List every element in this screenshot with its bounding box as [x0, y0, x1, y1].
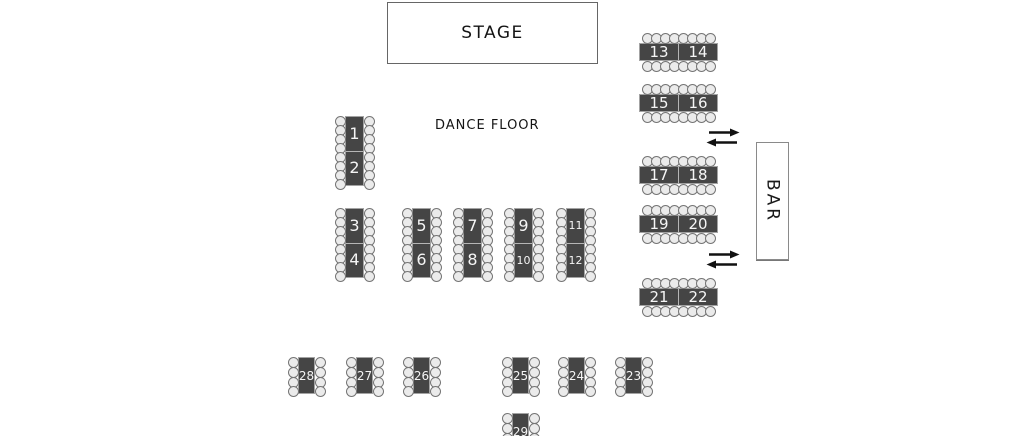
- chair: [288, 386, 299, 397]
- chair: [705, 33, 716, 44]
- table-number: 14: [678, 44, 717, 60]
- table-28[interactable]: 28: [298, 357, 315, 394]
- bar: BAR: [756, 142, 789, 260]
- table-number: 25: [513, 358, 528, 393]
- chair: [364, 271, 375, 282]
- table-number: 27: [357, 358, 372, 393]
- chair: [533, 271, 544, 282]
- chair: [335, 271, 346, 282]
- table-11-12[interactable]: 1112: [566, 208, 585, 278]
- table-25[interactable]: 25: [512, 357, 529, 394]
- chair: [705, 278, 716, 289]
- chair: [705, 61, 716, 72]
- table-26[interactable]: 26: [413, 357, 430, 394]
- chair: [556, 271, 567, 282]
- table-7-8[interactable]: 78: [463, 208, 482, 278]
- table-number: 9: [515, 209, 532, 243]
- table-27[interactable]: 27: [356, 357, 373, 394]
- table-9-10[interactable]: 910: [514, 208, 533, 278]
- table-number: 3: [346, 209, 363, 243]
- chair: [705, 156, 716, 167]
- table-number: 20: [678, 216, 717, 232]
- chair: [315, 386, 326, 397]
- table-1-2[interactable]: 12: [345, 116, 364, 186]
- chair: [558, 386, 569, 397]
- table-number: 17: [640, 167, 678, 183]
- table-number: 22: [678, 289, 717, 305]
- chair: [705, 112, 716, 123]
- chair: [453, 271, 464, 282]
- table-number: 5: [413, 209, 430, 243]
- passage-arrows-bottom-icon: [706, 250, 740, 273]
- table-number: 2: [346, 151, 363, 186]
- chair: [430, 386, 441, 397]
- table-number: 24: [569, 358, 584, 393]
- stage-label: STAGE: [461, 23, 524, 43]
- table-number: 16: [678, 95, 717, 111]
- chair: [504, 271, 515, 282]
- table-21-22[interactable]: 2122: [639, 288, 718, 306]
- table-number: 10: [515, 243, 532, 278]
- table-number: 19: [640, 216, 678, 232]
- table-17-18[interactable]: 1718: [639, 166, 718, 184]
- table-24[interactable]: 24: [568, 357, 585, 394]
- venue-floor-plan: STAGE DANCE FLOOR BAR 123456789101112131…: [0, 0, 1024, 436]
- chair: [373, 386, 384, 397]
- table-13-14[interactable]: 1314: [639, 43, 718, 61]
- chair: [502, 386, 513, 397]
- chair: [705, 205, 716, 216]
- table-number: 12: [567, 243, 584, 278]
- chair: [402, 271, 413, 282]
- chair: [705, 184, 716, 195]
- table-23[interactable]: 23: [625, 357, 642, 394]
- table-number: 29: [513, 414, 528, 436]
- chair: [529, 433, 540, 436]
- dance-floor-label: DANCE FLOOR: [435, 118, 540, 133]
- passage-arrows-top-icon: [706, 128, 740, 151]
- table-number: 11: [567, 209, 584, 243]
- chair: [502, 433, 513, 436]
- table-number: 23: [626, 358, 641, 393]
- table-number: 4: [346, 243, 363, 278]
- table-number: 28: [299, 358, 314, 393]
- bar-label: BAR: [763, 179, 783, 223]
- table-number: 7: [464, 209, 481, 243]
- chair: [585, 386, 596, 397]
- table-5-6[interactable]: 56: [412, 208, 431, 278]
- chair: [705, 84, 716, 95]
- table-number: 13: [640, 44, 678, 60]
- table-number: 21: [640, 289, 678, 305]
- chair: [615, 386, 626, 397]
- table-number: 8: [464, 243, 481, 278]
- table-number: 6: [413, 243, 430, 278]
- table-3-4[interactable]: 34: [345, 208, 364, 278]
- stage: STAGE: [387, 2, 598, 64]
- chair: [346, 386, 357, 397]
- chair: [364, 179, 375, 190]
- table-15-16[interactable]: 1516: [639, 94, 718, 112]
- chair: [335, 179, 346, 190]
- chair: [705, 306, 716, 317]
- chair: [403, 386, 414, 397]
- chair: [529, 386, 540, 397]
- table-number: 26: [414, 358, 429, 393]
- chair: [705, 233, 716, 244]
- chair: [642, 386, 653, 397]
- table-19-20[interactable]: 1920: [639, 215, 718, 233]
- chair: [431, 271, 442, 282]
- chair: [482, 271, 493, 282]
- table-number: 15: [640, 95, 678, 111]
- chair: [585, 271, 596, 282]
- table-29[interactable]: 29: [512, 413, 529, 436]
- table-number: 18: [678, 167, 717, 183]
- table-number: 1: [346, 117, 363, 151]
